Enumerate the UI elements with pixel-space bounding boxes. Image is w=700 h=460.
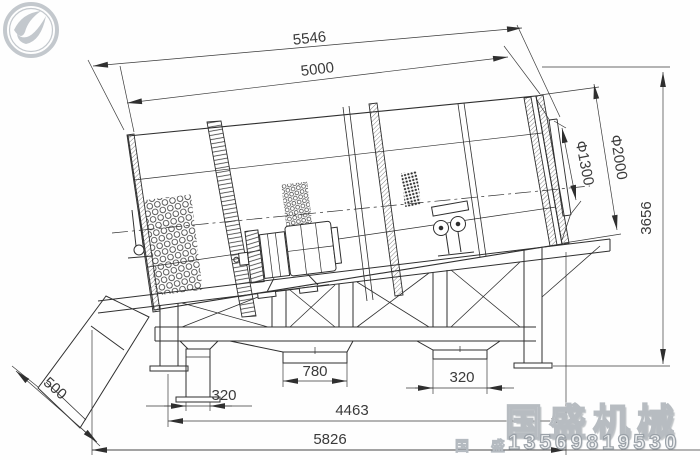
- dim-left-leg-width: 320: [211, 387, 236, 404]
- dim-drum-diameter: Φ2000: [607, 134, 631, 181]
- dim-overall-height: 3656: [638, 201, 655, 234]
- watermark-bird-logo: [0, 0, 62, 62]
- gear-reducer: [259, 232, 289, 279]
- dim-overall-length: 5546: [292, 28, 327, 48]
- right-discharge-hopper: [417, 341, 500, 359]
- dim-right-outlet-width: 320: [449, 369, 474, 386]
- dim-line-outlet-diameter: [562, 128, 576, 200]
- center-discharge-hopper: [230, 341, 353, 363]
- discharge-chute: [38, 296, 149, 428]
- watermark-phone-number: 13569819530: [508, 431, 680, 455]
- dim-drum-length: 5000: [300, 59, 335, 80]
- motor-body: [285, 220, 343, 276]
- dim-span: 4463: [335, 402, 368, 419]
- left-front-column: [150, 303, 188, 371]
- perforation-cluster-small: [281, 182, 312, 231]
- dim-chute-length: 500: [40, 374, 70, 403]
- cad-drawing-canvas: 5546 5000 Φ1300 Φ2000 3656 500 320 780 3…: [0, 0, 700, 460]
- right-column: [514, 248, 552, 368]
- cad-drawing-sheet: 5546 5000 Φ1300 Φ2000 3656 500 320 780 3…: [0, 0, 700, 460]
- dim-center-outlet-width: 780: [302, 363, 327, 380]
- watermark-brand-small-text: 国 盛: [455, 436, 514, 456]
- dim-outlet-diameter: Φ1300: [572, 139, 597, 187]
- dim-base-length: 5826: [313, 431, 346, 448]
